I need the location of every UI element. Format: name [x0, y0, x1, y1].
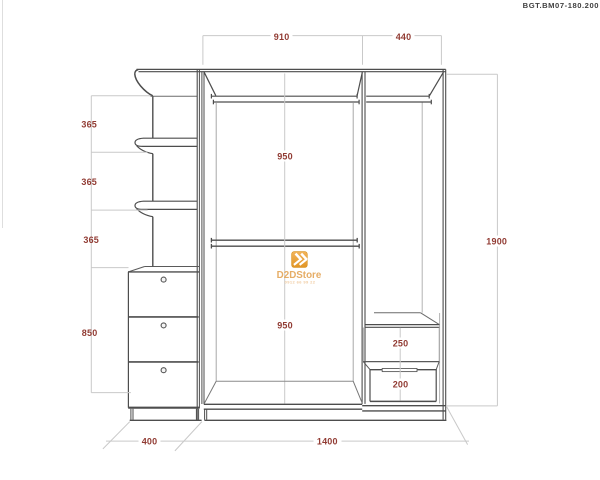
- svg-text:BGT.BM07-180.200: BGT.BM07-180.200: [523, 1, 599, 10]
- svg-text:1900: 1900: [486, 237, 507, 247]
- svg-text:0912 66 99 22: 0912 66 99 22: [285, 279, 316, 284]
- svg-text:850: 850: [82, 328, 98, 338]
- svg-text:910: 910: [274, 32, 290, 42]
- svg-text:400: 400: [142, 437, 158, 447]
- svg-text:365: 365: [83, 235, 99, 245]
- svg-text:200: 200: [393, 380, 409, 390]
- svg-text:250: 250: [393, 339, 409, 349]
- svg-text:365: 365: [81, 177, 97, 187]
- svg-text:1400: 1400: [317, 437, 338, 447]
- svg-text:440: 440: [396, 32, 412, 42]
- svg-text:950: 950: [277, 152, 293, 162]
- svg-text:950: 950: [277, 321, 293, 331]
- svg-text:365: 365: [81, 119, 97, 129]
